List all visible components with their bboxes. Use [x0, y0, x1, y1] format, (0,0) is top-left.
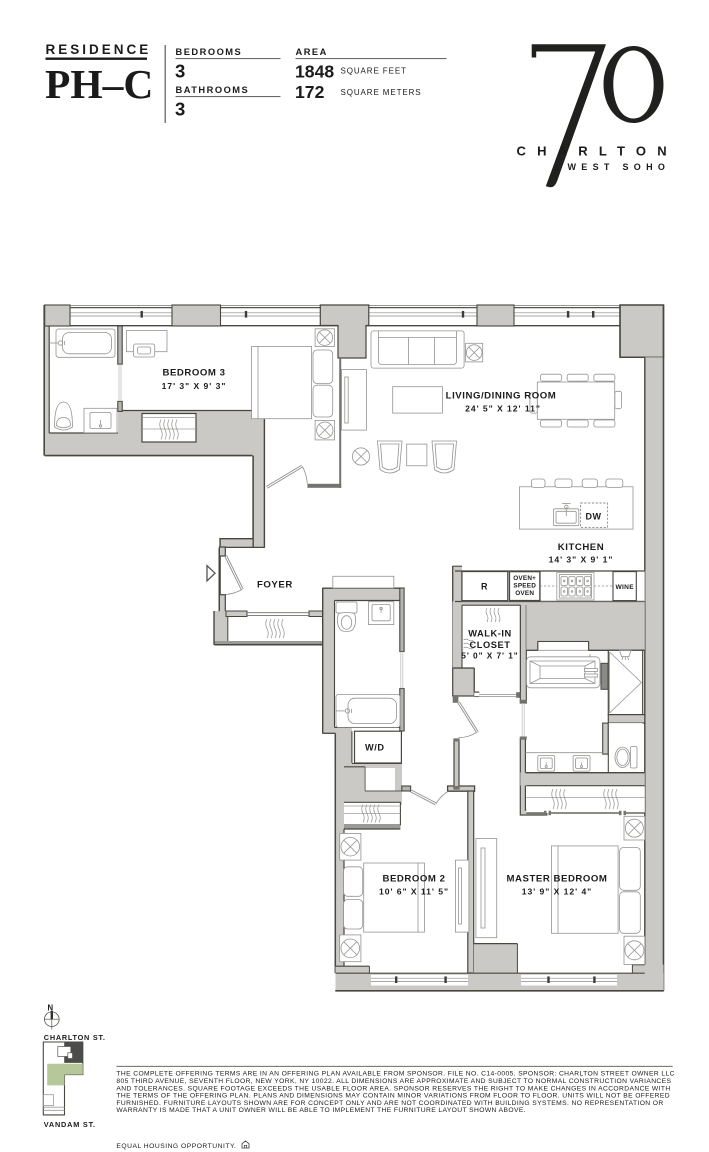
svg-text:FOYER: FOYER — [257, 580, 293, 591]
svg-text:PH–C: PH–C — [45, 61, 153, 107]
svg-text:THE COMPLETE OFFERING TERMS AR: THE COMPLETE OFFERING TERMS ARE IN AN OF… — [116, 1071, 674, 1078]
svg-text:AND TOLERANCES. SQUARE FOOTAGE: AND TOLERANCES. SQUARE FOOTAGE EXCEEDS T… — [116, 1085, 670, 1092]
svg-text:FURNISHED. FURNITURE LAYOUTS S: FURNISHED. FURNITURE LAYOUTS SHOWN ARE F… — [116, 1100, 663, 1107]
svg-text:THE TERMS OF THE OFFERING PLAN: THE TERMS OF THE OFFERING PLAN. PLANS AN… — [116, 1093, 670, 1100]
svg-text:BEDROOM 3: BEDROOM 3 — [162, 368, 225, 379]
svg-text:14' 3" X 9' 1": 14' 3" X 9' 1" — [549, 555, 614, 565]
svg-text:SQUARE FEET: SQUARE FEET — [341, 67, 407, 76]
svg-text:EQUAL HOUSING OPPORTUNITY.: EQUAL HOUSING OPPORTUNITY. — [116, 1143, 236, 1150]
svg-text:VANDAM ST.: VANDAM ST. — [44, 1120, 96, 1129]
svg-text:DW: DW — [586, 512, 602, 522]
svg-text:17' 3" X 9' 3": 17' 3" X 9' 3" — [162, 381, 227, 391]
svg-text:BATHROOMS: BATHROOMS — [176, 85, 250, 95]
svg-text:W/D: W/D — [365, 743, 385, 753]
svg-text:BEDROOM 2: BEDROOM 2 — [382, 874, 445, 885]
svg-text:805 THIRD AVENUE, SEVENTH FLOO: 805 THIRD AVENUE, SEVENTH FLOOR, NEW YOR… — [116, 1078, 671, 1085]
svg-text:CHARLTON: CHARLTON — [517, 144, 678, 159]
svg-text:MASTER BEDROOM: MASTER BEDROOM — [507, 874, 608, 885]
svg-text:CHARLTON ST.: CHARLTON ST. — [44, 1033, 106, 1042]
svg-text:CLOSET: CLOSET — [469, 640, 510, 650]
svg-text:LIVING/DINING ROOM: LIVING/DINING ROOM — [446, 391, 557, 402]
svg-text:WARRANTY IS MADE THAT A UNIT O: WARRANTY IS MADE THAT A UNIT OWNER WILL … — [116, 1107, 526, 1114]
svg-text:OVEN: OVEN — [515, 590, 534, 597]
svg-text:3: 3 — [175, 99, 185, 120]
svg-text:172: 172 — [295, 82, 325, 102]
svg-text:R: R — [481, 582, 488, 592]
svg-text:24' 5" X 12' 11": 24' 5" X 12' 11" — [465, 404, 541, 414]
svg-text:SPEED: SPEED — [513, 583, 536, 590]
svg-text:10' 6" X 11' 5": 10' 6" X 11' 5" — [379, 887, 449, 897]
svg-text:OVEN+: OVEN+ — [513, 575, 536, 582]
svg-text:13' 9" X 12' 4": 13' 9" X 12' 4" — [522, 887, 592, 897]
svg-text:5' 0" X 7' 1": 5' 0" X 7' 1" — [461, 651, 518, 661]
svg-text:SQUARE METERS: SQUARE METERS — [341, 88, 422, 97]
svg-text:BEDROOMS: BEDROOMS — [176, 47, 243, 57]
svg-text:WINE: WINE — [616, 584, 635, 591]
svg-text:AREA: AREA — [296, 47, 328, 57]
svg-text:KITCHEN: KITCHEN — [558, 542, 605, 553]
svg-text:1848: 1848 — [295, 62, 334, 82]
svg-text:WEST SOHO: WEST SOHO — [568, 162, 671, 172]
svg-text:3: 3 — [175, 61, 185, 82]
svg-text:WALK-IN: WALK-IN — [468, 629, 512, 639]
svg-text:RESIDENCE: RESIDENCE — [46, 42, 152, 57]
